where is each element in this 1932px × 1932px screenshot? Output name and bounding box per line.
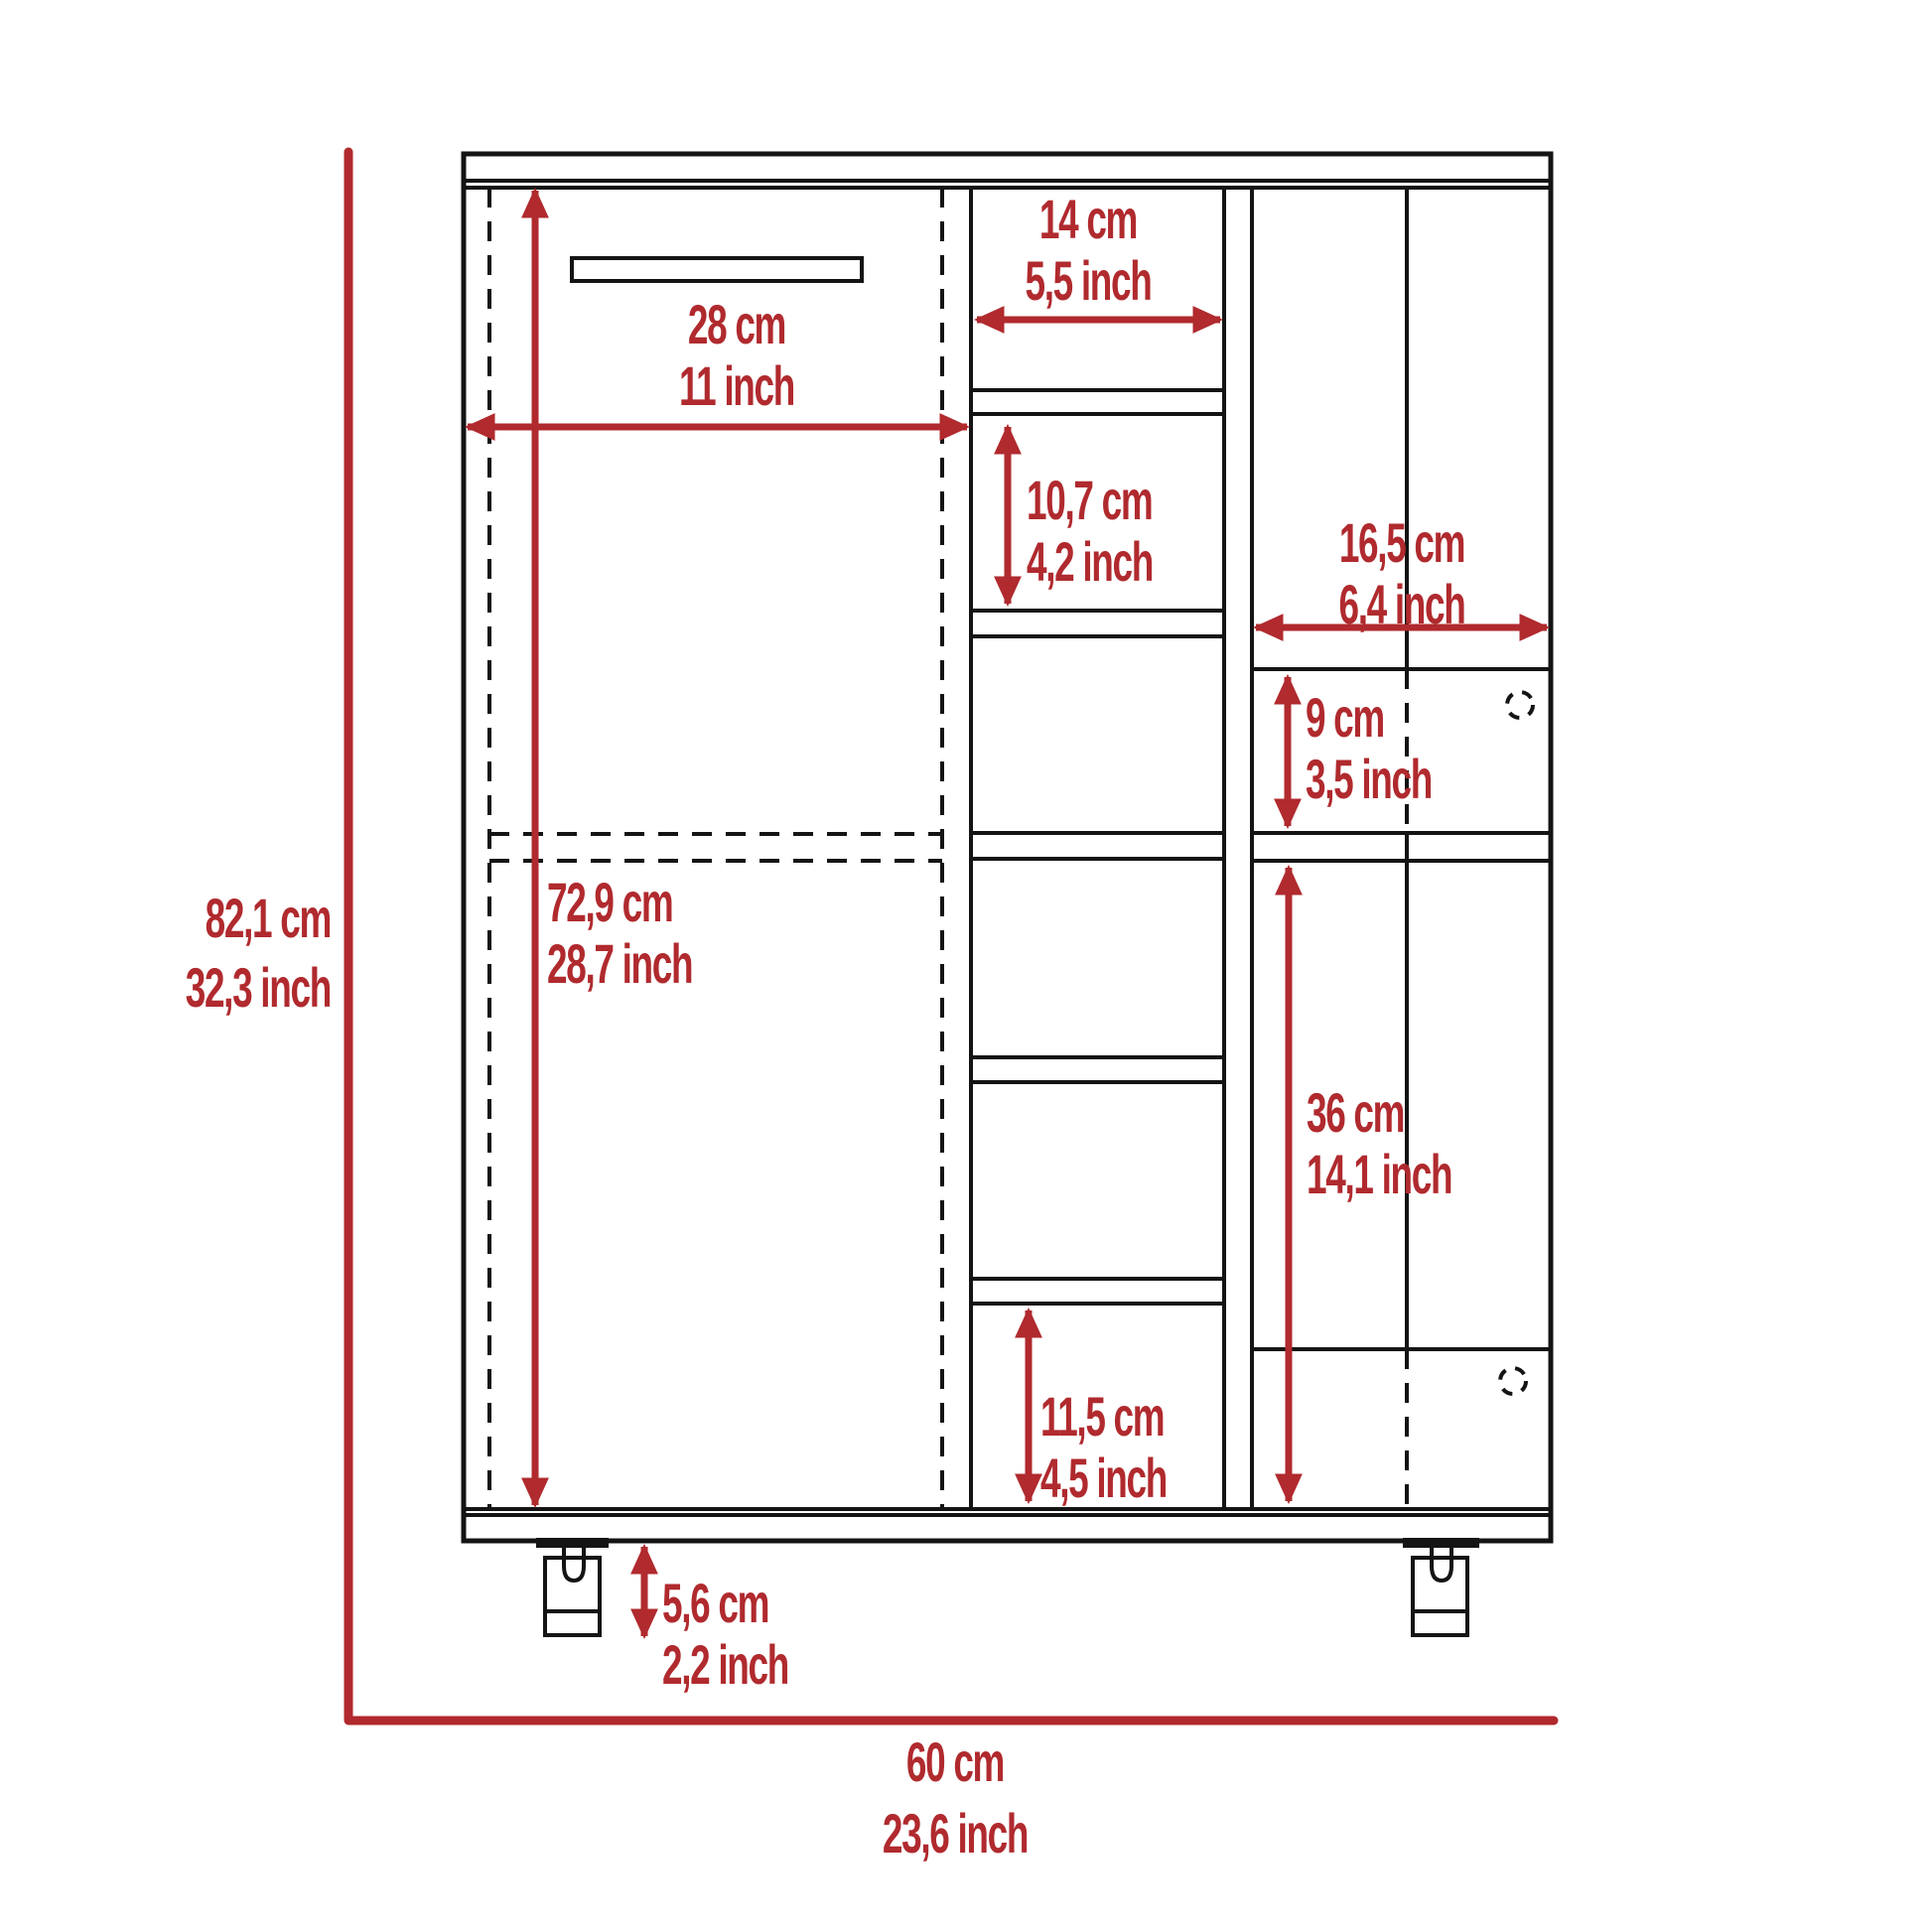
label-cubby-height-inch: 4,2 inch [1027,531,1153,594]
caster-left-wheel [545,1558,600,1635]
cabinet-body [464,154,1551,1541]
label-upper-door-height-inch: 3,5 inch [1306,749,1432,811]
label-lower-door-height-inch: 14,1 inch [1307,1144,1451,1206]
caster-left-stem [564,1548,584,1581]
label-bottom-cubby-height-cm: 11,5 cm [1040,1386,1164,1449]
caster-left [536,1538,609,1635]
label-door-height-cm: 72,9 cm [547,872,672,934]
right-section [1252,188,1551,1509]
lower-door-knob [1500,1368,1526,1394]
label-lower-door-height-cm: 36 cm [1307,1082,1404,1145]
label-overall-height-cm: 82,1 cm [206,888,331,950]
label-caster-height-inch: 2,2 inch [662,1634,788,1697]
door-handle [572,258,862,281]
label-cubby-width-inch: 5,5 inch [1025,250,1151,313]
label-overall-height-inch: 32,3 inch [186,957,331,1020]
caster-right-plate [1403,1538,1479,1548]
label-overall-width-inch: 23,6 inch [883,1803,1028,1865]
label-cubby-width-cm: 14 cm [1039,189,1137,251]
label-door-height-inch: 28,7 inch [547,933,692,996]
label-bottom-cubby-height-inch: 4,5 inch [1040,1448,1167,1510]
cabinet-outline [464,154,1551,1541]
label-right-width-cm: 16,5 cm [1339,512,1464,575]
overall-dimension-lines [348,152,1554,1721]
label-upper-door-height-cm: 9 cm [1306,687,1384,750]
caster-right-stem [1432,1548,1451,1581]
diagram-canvas: 82,1 cm 32,3 inch 60 cm 23,6 inch 28 cm … [0,0,1932,1932]
label-door-width-inch: 11 inch [679,355,794,418]
caster-right-wheel [1413,1558,1467,1635]
label-cubby-height-cm: 10,7 cm [1027,470,1152,532]
label-overall-width-cm: 60 cm [906,1731,1004,1794]
caster-left-plate [536,1538,609,1548]
caster-right [1403,1538,1479,1635]
label-right-width-inch: 6,4 inch [1338,574,1464,636]
bottle-cubby-column [971,188,1252,1509]
label-door-width-cm: 28 cm [688,294,785,356]
dimension-diagram: 82,1 cm 32,3 inch 60 cm 23,6 inch 28 cm … [0,0,1932,1932]
upper-door-knob [1507,692,1533,718]
label-caster-height-cm: 5,6 cm [662,1573,768,1635]
